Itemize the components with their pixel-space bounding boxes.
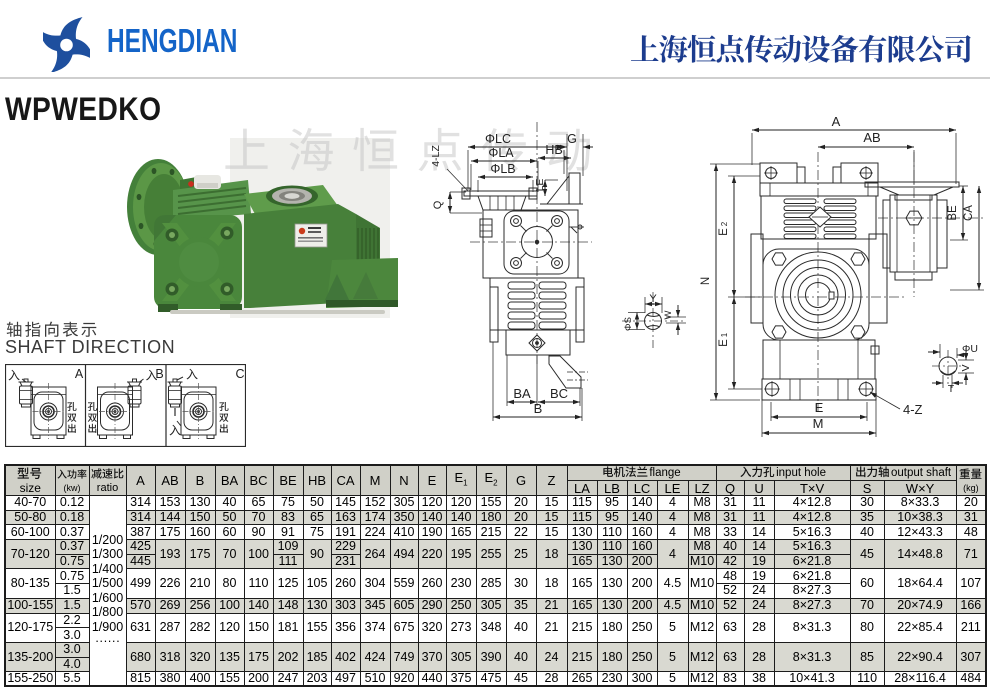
svg-text:E: E [815,400,824,415]
svg-text:ΦLC: ΦLC [485,132,511,146]
svg-text:N: N [700,277,712,285]
svg-text:B: B [534,401,543,416]
svg-text:BE: BE [947,205,959,221]
svg-text:T: T [948,383,955,395]
svg-text:Q: Q [432,200,444,209]
svg-text:M: M [813,416,824,431]
svg-text:ΦLB: ΦLB [490,162,515,176]
svg-text:E: E [718,339,730,347]
svg-text:B: B [155,367,163,381]
svg-text:4-Z: 4-Z [903,402,923,417]
svg-text:A: A [832,114,841,129]
svg-text:1: 1 [720,332,729,337]
svg-text:ΦLA: ΦLA [488,146,514,160]
svg-text:BA: BA [513,386,531,401]
svg-text:ΦS: ΦS [623,317,634,331]
svg-text:2: 2 [720,221,729,226]
svg-text:CA: CA [963,205,975,221]
svg-text:AB: AB [863,130,880,145]
svg-text:BC: BC [550,386,568,401]
svg-text:G: G [567,132,577,146]
svg-text:E: E [718,228,730,236]
svg-text:A: A [75,367,84,381]
svg-text:C: C [235,367,244,381]
svg-text:W: W [663,310,674,319]
svg-text:4-LZ: 4-LZ [432,145,442,167]
svg-text:V: V [960,364,972,371]
